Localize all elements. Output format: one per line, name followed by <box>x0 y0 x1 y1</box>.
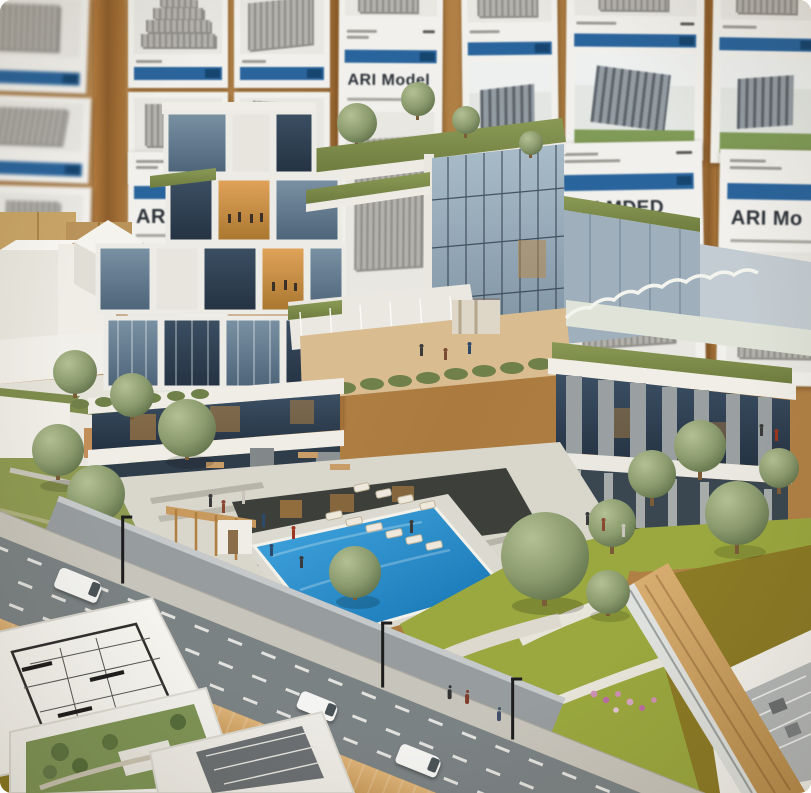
poster-ari-mo: ARI Mo <box>716 149 811 387</box>
poster-sketch <box>234 92 330 184</box>
street-lamp <box>121 516 124 584</box>
wood-batten <box>94 0 124 520</box>
pedestrian <box>465 694 469 704</box>
building-rendering <box>574 53 695 152</box>
white-van <box>295 690 339 722</box>
poster-title-mo: ARI Mo <box>731 207 803 231</box>
poster-sketch <box>0 0 90 94</box>
poster-title-mded: ARI MDED <box>566 197 664 221</box>
poster-accent-bar <box>563 173 693 191</box>
street-lamp <box>511 678 514 740</box>
architectural-model-photo: AR ARI Model <box>0 0 811 793</box>
street-lamp <box>381 622 384 688</box>
poster-ar-partial: AR <box>128 152 228 322</box>
poster-accent-bar <box>0 69 80 86</box>
pedestrian <box>448 689 452 699</box>
poster-rendering <box>461 0 559 170</box>
poster-rendering <box>565 0 705 161</box>
poster-sketch-cube <box>234 0 330 88</box>
poster-title-ar: AR <box>136 206 166 229</box>
poster-title-center: ARI Model <box>347 72 430 91</box>
building-rendering <box>719 57 811 155</box>
poster-accent-bar <box>345 50 437 64</box>
poster-sketch <box>0 94 91 184</box>
building-rendering <box>469 62 552 159</box>
pedestrian <box>497 711 501 721</box>
poster-ari-mded: ARI MDED <box>554 141 706 376</box>
poster-rendering <box>710 0 811 165</box>
poster-ari-model: ARI Model <box>337 0 443 322</box>
poster-sketch-ziggurat <box>128 0 228 88</box>
poster-sketch <box>0 185 92 308</box>
